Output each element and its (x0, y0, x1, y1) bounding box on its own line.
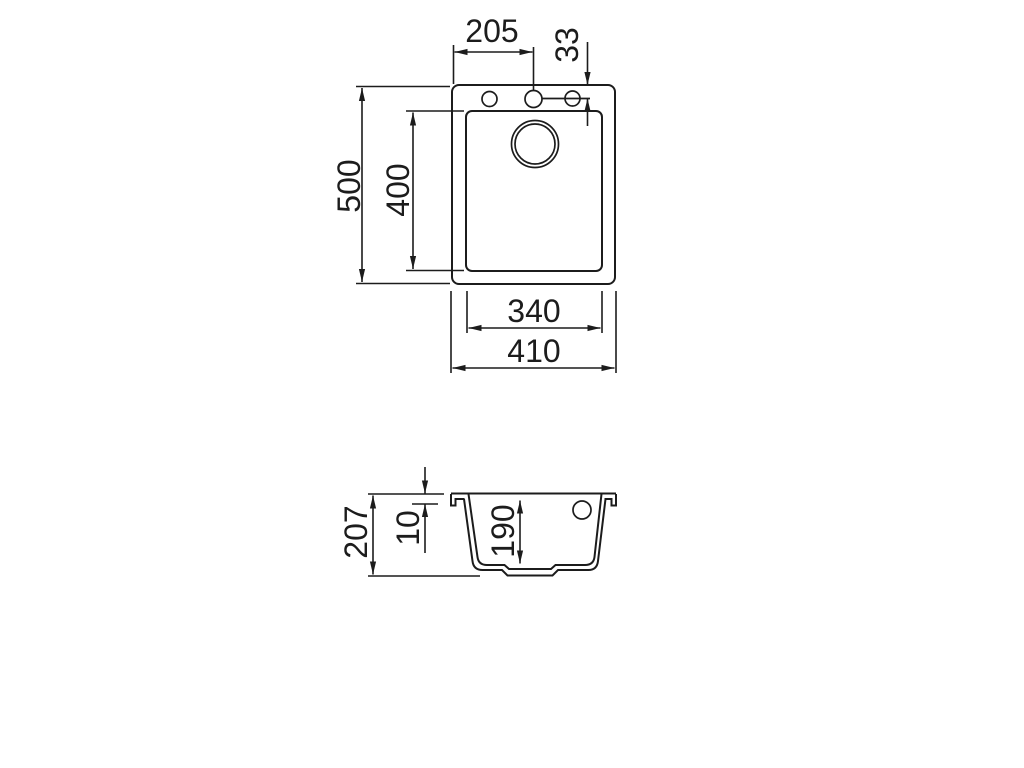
dim-tap-center-from-left: 205 (454, 13, 534, 90)
dimension-label: 207 (338, 505, 374, 558)
section-view: 207 10 190 (338, 467, 616, 576)
dimension-label: 500 (331, 159, 367, 212)
dim-bowl-width: 340 (467, 291, 602, 333)
dimension-label: 410 (507, 333, 560, 369)
sink-technical-drawing: 205 33 500 400 (0, 0, 1024, 768)
drain-outer-circle (512, 121, 559, 168)
dim-rim-height: 10 (390, 467, 438, 553)
dimension-label: 190 (485, 504, 521, 557)
dimension-label: 33 (549, 27, 585, 63)
dimension-label: 340 (507, 293, 560, 329)
tap-hole-center (525, 91, 542, 108)
dimension-label: 205 (465, 13, 518, 49)
overflow-hole (573, 501, 591, 519)
dimension-label: 400 (380, 163, 416, 216)
tap-hole-left (482, 92, 497, 107)
sink-outer-outline (452, 85, 615, 284)
drain-inner-circle (515, 124, 555, 164)
dimension-label: 10 (390, 510, 426, 546)
left-rim-lip (451, 494, 465, 506)
dim-bowl-inner-depth: 190 (485, 501, 521, 564)
top-view: 205 33 500 400 (331, 13, 616, 373)
bowl-outline (466, 111, 602, 271)
drawing-canvas: 205 33 500 400 (0, 0, 1024, 768)
